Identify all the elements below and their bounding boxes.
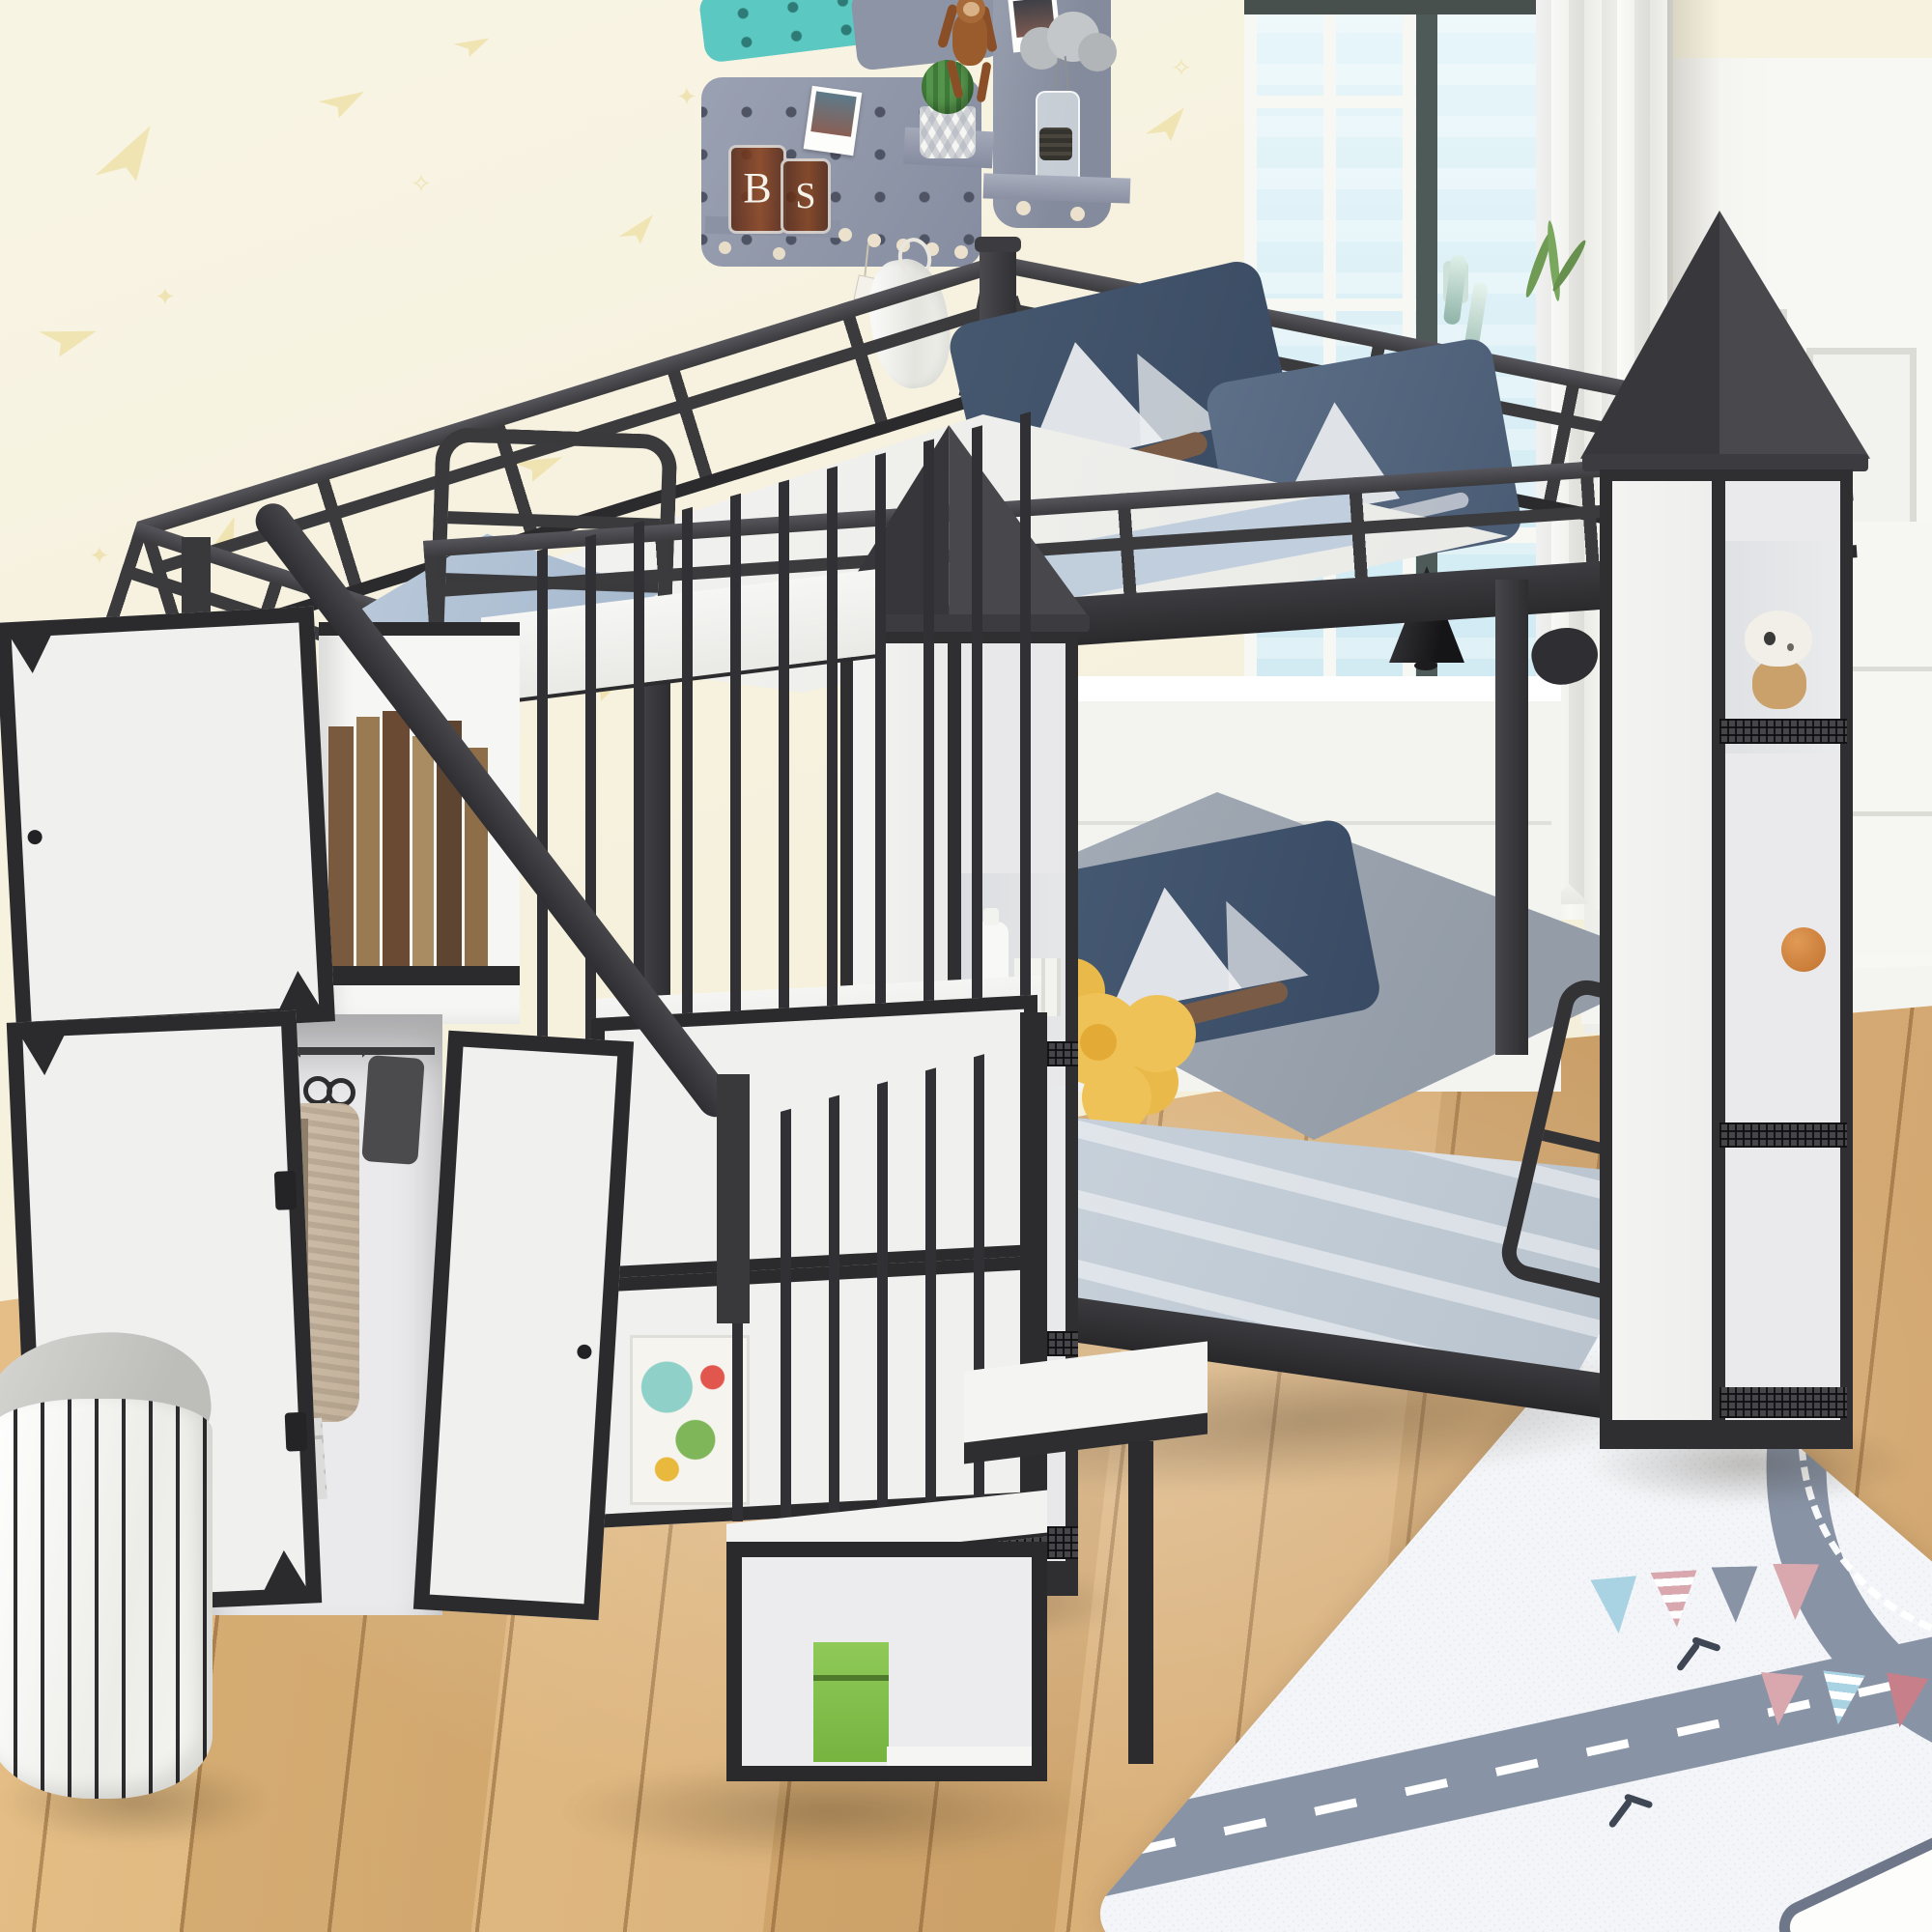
- corner-post-cap: [975, 237, 1021, 252]
- cubby-floor: [887, 1747, 1032, 1766]
- rug-sign: 6 E: [1771, 1814, 1932, 1932]
- wood-peg: [773, 247, 785, 260]
- tower-frame-edge: [1600, 469, 1612, 1449]
- polaroid-image: [810, 91, 856, 136]
- green-drawer: [813, 1642, 889, 1762]
- laundry-basket: [0, 1399, 213, 1799]
- bunting-flag: [1712, 1566, 1759, 1623]
- skull-toy-head: [1745, 611, 1812, 667]
- book-spine: [383, 711, 410, 970]
- lamp-base: [1414, 661, 1437, 670]
- bird-wing: [1607, 1799, 1633, 1829]
- bird-wing: [1676, 1641, 1701, 1671]
- jar-b: B: [728, 145, 786, 234]
- door-hinge: [285, 1412, 308, 1452]
- wood-peg: [838, 228, 852, 241]
- star-motif: ✦: [155, 282, 176, 312]
- tower-mesh-base: [1719, 1387, 1847, 1418]
- monkey-face: [963, 2, 980, 16]
- wood-peg: [867, 234, 881, 247]
- door-knob: [577, 1344, 592, 1359]
- wood-peg: [719, 241, 731, 254]
- polaroid-photo: [804, 86, 863, 156]
- dark-clothes: [361, 1055, 425, 1165]
- flower-puff: [1078, 33, 1117, 71]
- tower-base-frame: [1600, 1420, 1853, 1449]
- star-motif: ✧: [411, 169, 432, 199]
- wood-peg: [954, 245, 968, 259]
- skull-nostril: [1787, 643, 1794, 651]
- door-corner-brace: [276, 970, 321, 1010]
- skull-eye: [1764, 632, 1776, 645]
- stair-leg: [1128, 1441, 1153, 1764]
- cubby-body: [726, 1542, 1047, 1781]
- door-knob: [27, 830, 43, 845]
- star-motif: ✧: [1171, 53, 1192, 83]
- pillow-sail-print: [1088, 876, 1242, 1014]
- door-corner-brace: [262, 1549, 308, 1592]
- door-hinge: [274, 1171, 298, 1210]
- jar-letter: B: [731, 163, 783, 213]
- tower-mesh-shelf: [1719, 1122, 1847, 1148]
- kids-room-scene: ✦ ✧ ✦ ✧ ✦ ✦ ✧ ✦ ✧ ✦ ✧ ✦: [0, 0, 1932, 1932]
- tower-frame-edge: [1712, 469, 1725, 1449]
- jar-letter: S: [783, 175, 828, 217]
- bottom-cubby: [726, 1507, 1047, 1781]
- bunting-flag: [1651, 1570, 1700, 1629]
- toy-box: [630, 1335, 750, 1505]
- orange-ball-toy: [1781, 927, 1826, 972]
- bunting-flag: [1590, 1576, 1641, 1635]
- book-spine: [412, 736, 434, 970]
- tower-mesh-shelf: [1719, 719, 1847, 744]
- right-tower: [1580, 211, 1870, 1466]
- book-spine: [328, 726, 354, 970]
- door-corner-brace: [10, 634, 54, 674]
- tower-face-left: [1600, 469, 1718, 1449]
- panel-shelf: [983, 173, 1131, 203]
- drawer-gap: [813, 1675, 889, 1681]
- star-motif: ✦: [676, 82, 697, 112]
- tower-frame-edge: [1840, 469, 1853, 1449]
- wood-peg: [1016, 201, 1031, 215]
- cactus-pot: [920, 106, 976, 158]
- door-corner-brace: [20, 1034, 67, 1076]
- handrail-post: [717, 1074, 750, 1323]
- wood-peg: [1070, 207, 1085, 221]
- star-motif: ✦: [89, 541, 110, 571]
- tower-column: [1600, 469, 1853, 1449]
- wardrobe-door-right: [413, 1031, 634, 1621]
- tower-frame-edge: [1600, 469, 1853, 481]
- bookshelf-bar: [319, 966, 520, 985]
- cabinet-door-open: [0, 607, 335, 1038]
- vase-rope-band: [1039, 128, 1072, 160]
- bed-leg: [1495, 580, 1528, 1055]
- jar-s: S: [781, 158, 831, 234]
- book-spine: [356, 717, 380, 970]
